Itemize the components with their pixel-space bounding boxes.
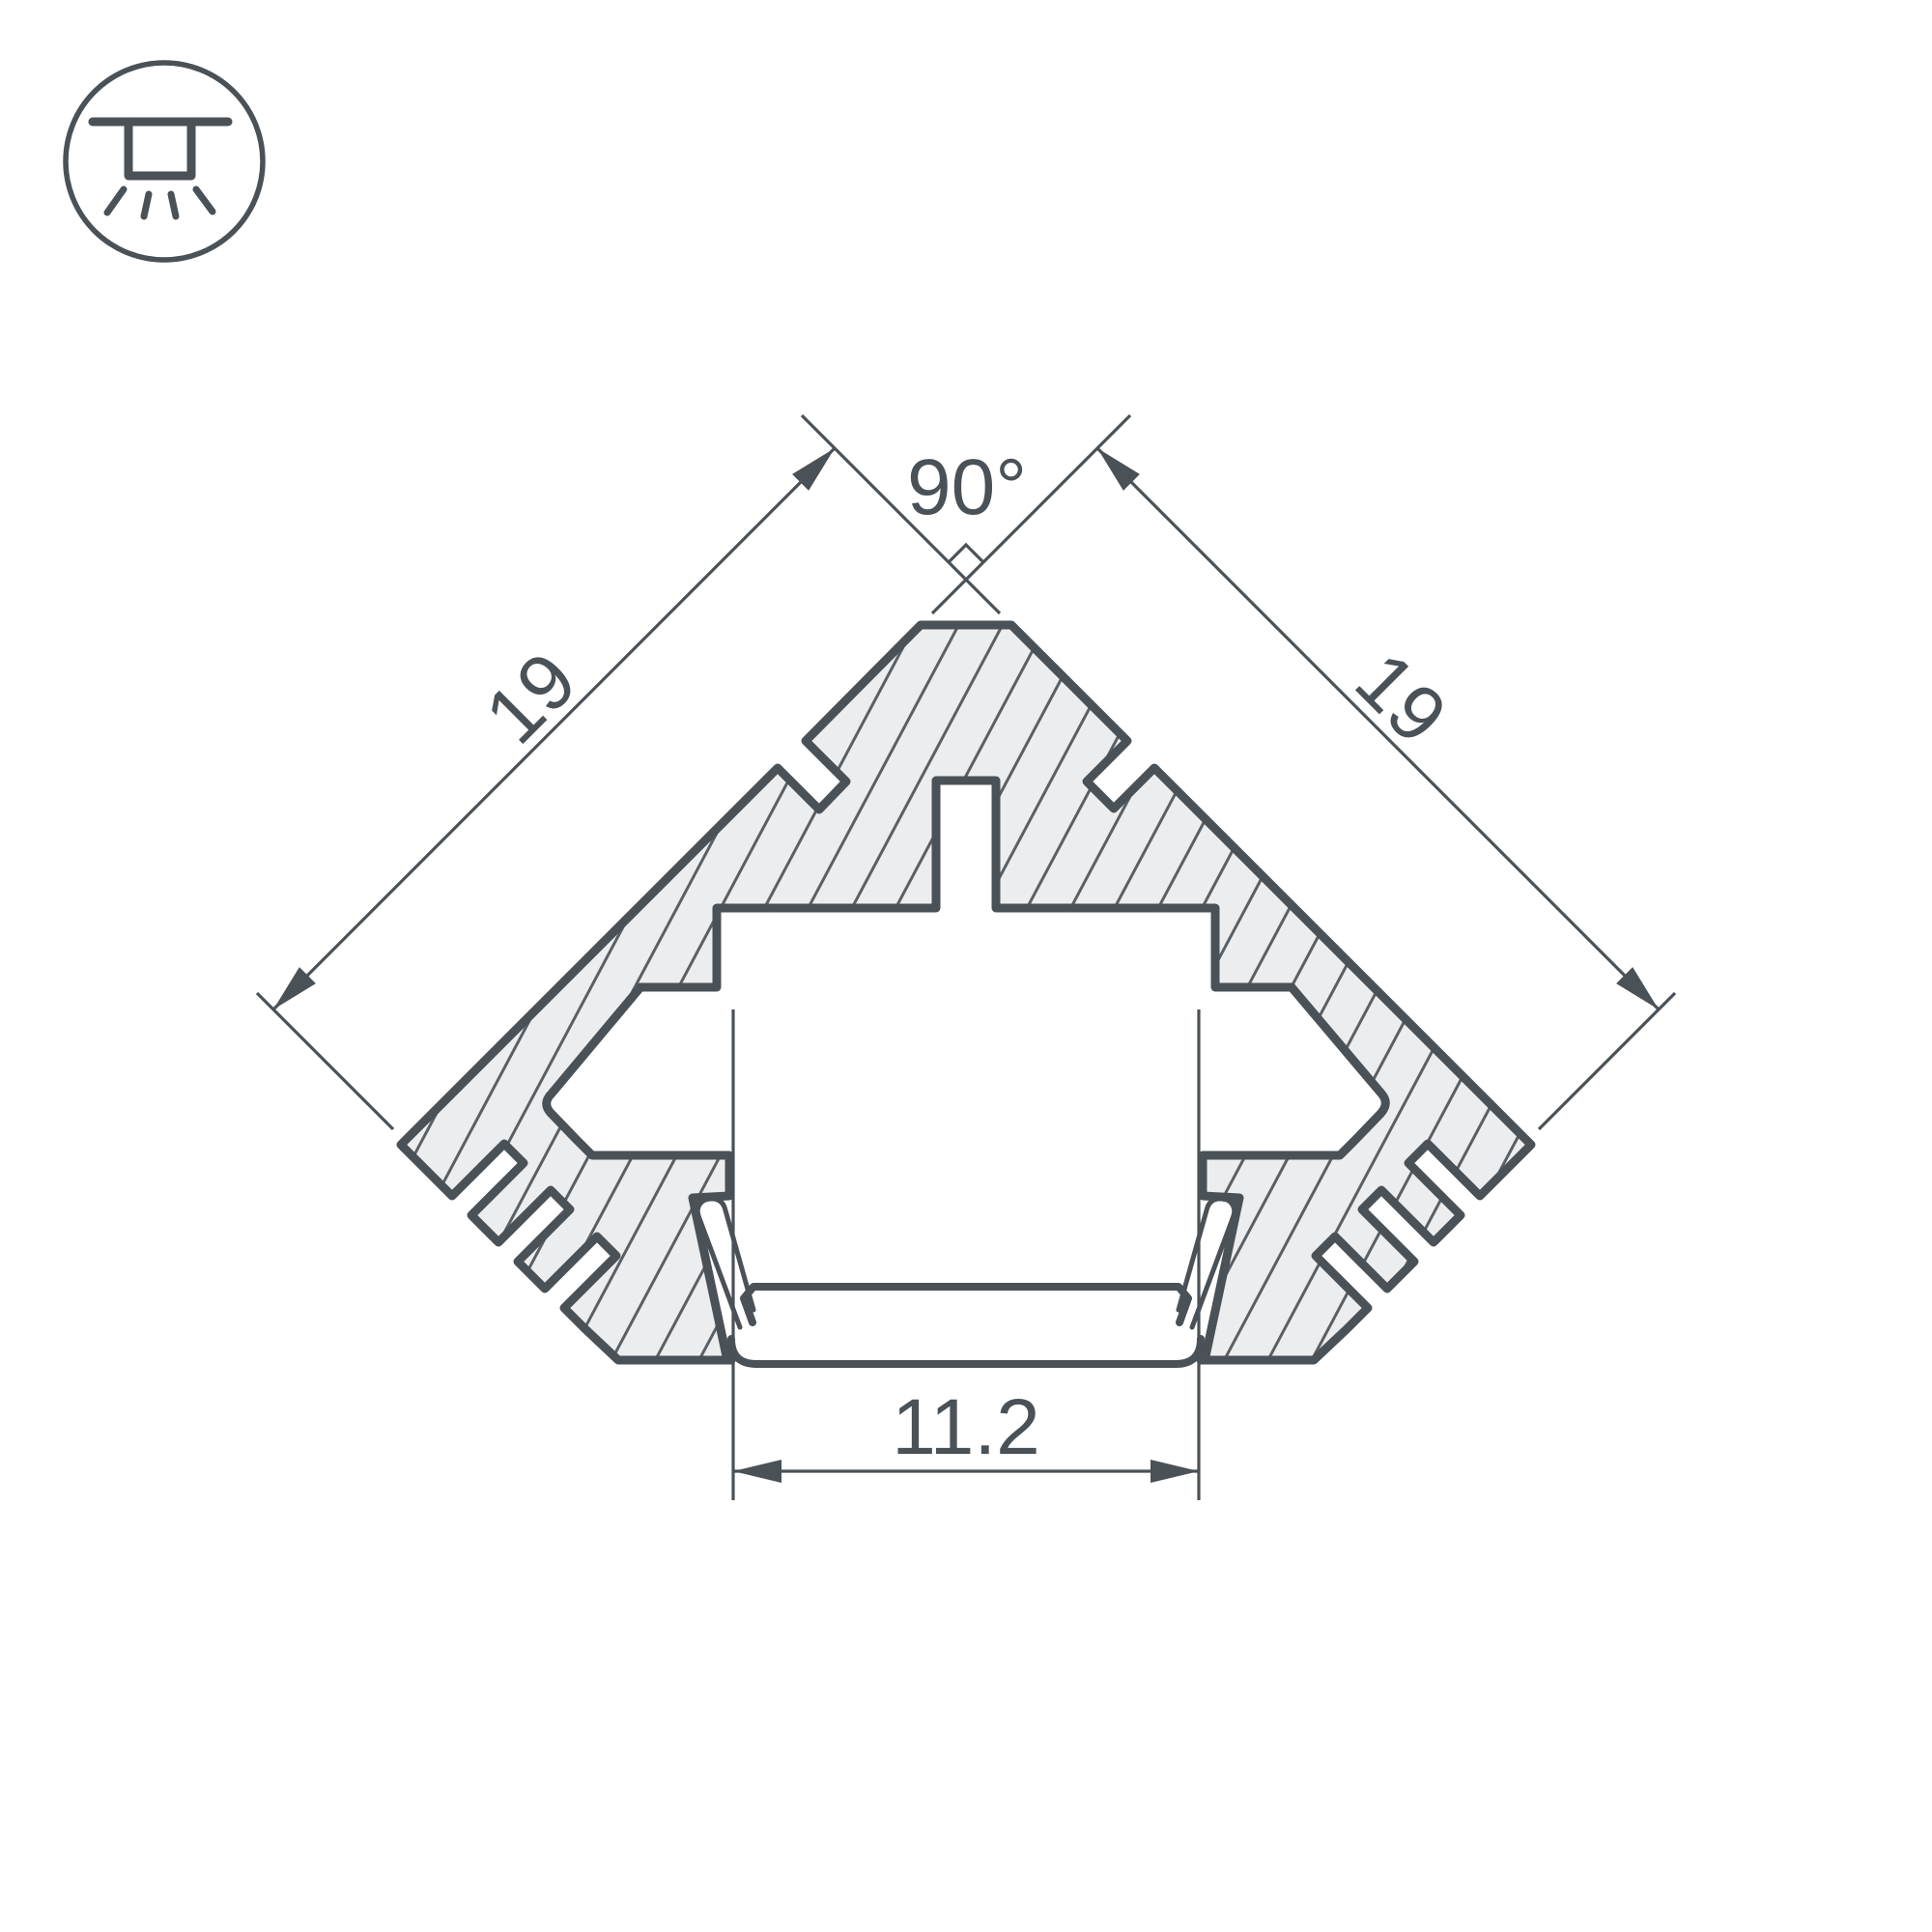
arrow-right-icon xyxy=(1151,1460,1199,1483)
arrow-left-icon xyxy=(733,1460,781,1483)
diffuser-top xyxy=(744,1287,1188,1322)
angle-dimension-label: 90° xyxy=(907,443,1027,531)
diffuser-bottom xyxy=(731,1339,1201,1364)
left-extension-line xyxy=(257,993,393,1129)
dimension-bottom-11-2: 11.2 xyxy=(733,1009,1199,1500)
icon-circle xyxy=(66,63,263,260)
dimension-angle-90: 90° xyxy=(802,415,1130,613)
right-angle-square-marker xyxy=(949,545,983,562)
drawing-canvas: 90° 19 19 11.2 xyxy=(0,0,1932,1932)
right-extension-line xyxy=(1539,993,1675,1129)
bottom-dimension-label: 11.2 xyxy=(892,1383,1040,1471)
left-dimension-label: 19 xyxy=(469,636,593,760)
right-dimension-label: 19 xyxy=(1339,636,1463,760)
profile-body xyxy=(401,625,1531,1360)
led-channel-parts xyxy=(697,1199,1235,1364)
icon-recessed-box xyxy=(128,122,191,176)
recessed-light-icon xyxy=(66,63,263,260)
icon-light-rays xyxy=(107,189,213,216)
profile-technical-drawing: 90° 19 19 11.2 xyxy=(0,0,1932,1932)
